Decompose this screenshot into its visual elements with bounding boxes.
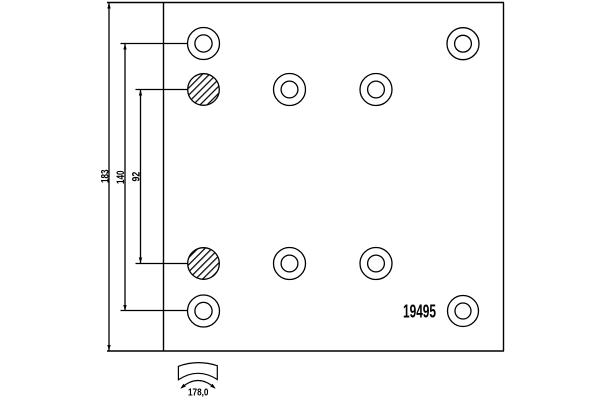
svg-text:19495: 19495 — [403, 302, 436, 322]
svg-text:183: 183 — [100, 169, 112, 183]
svg-text:92: 92 — [131, 172, 143, 182]
svg-text:178,0: 178,0 — [188, 388, 209, 399]
svg-text:140: 140 — [115, 170, 127, 184]
